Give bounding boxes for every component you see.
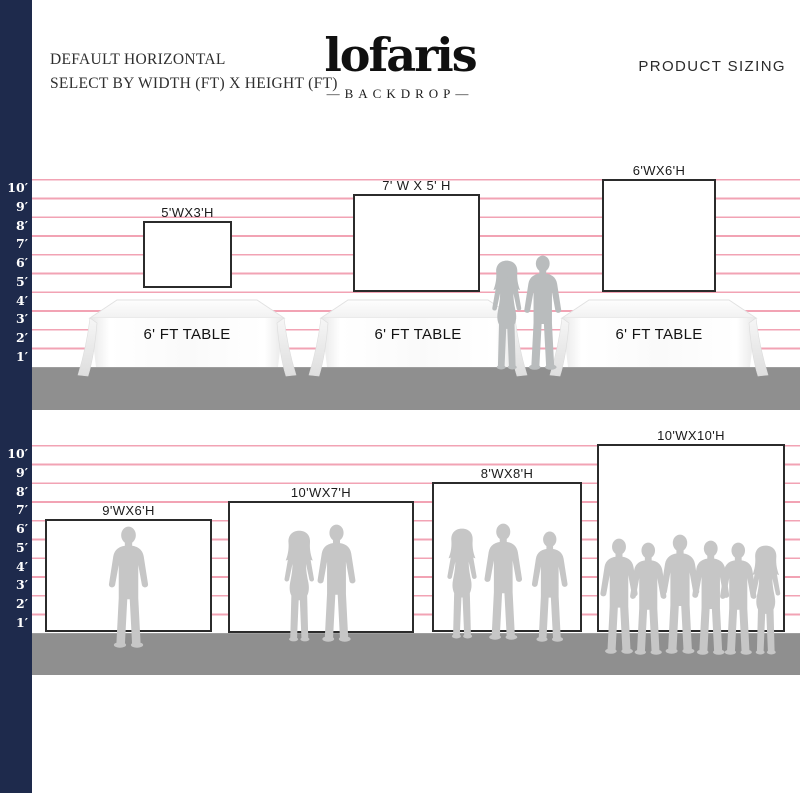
ruler-tick: 8′ [0, 218, 28, 233]
ruler-tick: 6′ [0, 521, 28, 536]
ruler-tick: 7′ [0, 502, 28, 517]
backdrop-size-label: 8'WX8'H [432, 466, 582, 481]
ruler-tick: 9′ [0, 465, 28, 480]
table-size-label: 6' FT TABLE [549, 326, 769, 343]
ruler-tick: 10′ [0, 180, 28, 195]
page-title: PRODUCT SIZING [590, 58, 786, 75]
group-of-three-silhouette [438, 521, 578, 643]
brand-logo: lofaris [300, 30, 500, 81]
ruler-tick: 7′ [0, 236, 28, 251]
ruler-tick: 2′ [0, 596, 28, 611]
ruler-tick: 4′ [0, 293, 28, 308]
ruler-tick: 1′ [0, 615, 28, 630]
backdrop-size-label: 6'WX6'H [602, 163, 716, 178]
man-silhouette [98, 524, 158, 648]
backdrop-size-label: 10'WX10'H [597, 428, 785, 443]
ruler-tick: 9′ [0, 199, 28, 214]
backdrop-7x5 [353, 194, 480, 292]
backdrop-size-label: 10'WX7'H [228, 485, 414, 500]
ruler-tick: 5′ [0, 274, 28, 289]
ruler-tick: 4′ [0, 559, 28, 574]
table-size-label: 6' FT TABLE [77, 326, 297, 343]
backdrop-size-label: 5'WX3'H [143, 205, 232, 220]
backdrop-size-label: 7' W X 5' H [353, 178, 480, 193]
brand-logo-subtitle: —BACKDROP— [300, 86, 500, 102]
ruler-tick: 1′ [0, 349, 28, 364]
ruler-tick: 3′ [0, 311, 28, 326]
product-sizing-infographic: DEFAULT HORIZONTAL SELECT BY WIDTH (FT) … [0, 0, 800, 800]
ruler-tick: 5′ [0, 540, 28, 555]
ruler-tick: 2′ [0, 330, 28, 345]
backdrop-6x6 [602, 179, 716, 292]
ruler-tick: 3′ [0, 577, 28, 592]
group-of-six-silhouette [596, 534, 786, 658]
ruler-tick: 8′ [0, 484, 28, 499]
couple-silhouette [273, 521, 365, 643]
ruler-tick: 10′ [0, 446, 28, 461]
backdrop-size-label: 9'WX6'H [45, 503, 212, 518]
backdrop-5x3 [143, 221, 232, 288]
ruler-tick: 6′ [0, 255, 28, 270]
ruler-bar [0, 0, 32, 793]
couple-silhouette [482, 252, 572, 370]
